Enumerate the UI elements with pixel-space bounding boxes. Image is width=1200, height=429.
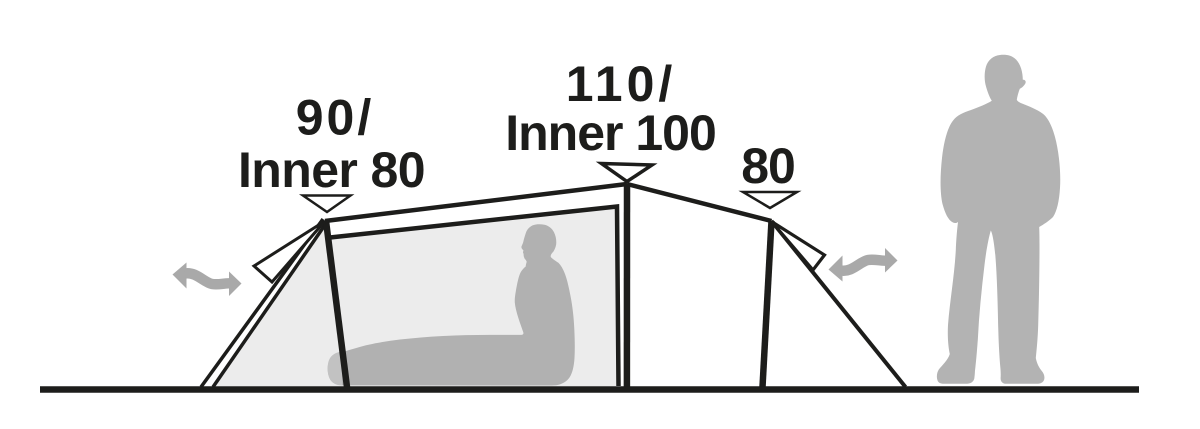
svg-text:90/: 90/ bbox=[296, 90, 375, 146]
svg-text:Inner 100: Inner 100 bbox=[505, 105, 716, 161]
svg-text:Inner 80: Inner 80 bbox=[238, 142, 425, 198]
svg-text:80: 80 bbox=[741, 138, 795, 194]
svg-text:110/: 110/ bbox=[566, 56, 677, 112]
